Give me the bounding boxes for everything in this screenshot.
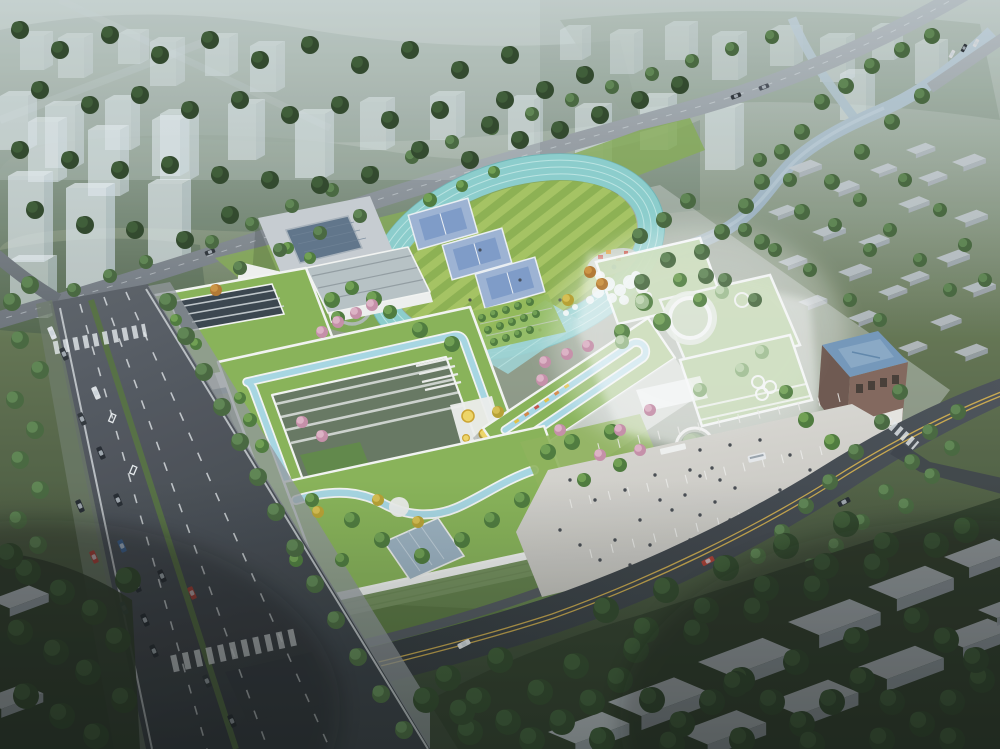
rendering-canvas: Bird's-eye architectural rendering: whit…: [0, 0, 1000, 749]
aerial-rendering: Bird's-eye architectural rendering: whit…: [0, 0, 1000, 749]
cool-tint: [0, 0, 1000, 749]
